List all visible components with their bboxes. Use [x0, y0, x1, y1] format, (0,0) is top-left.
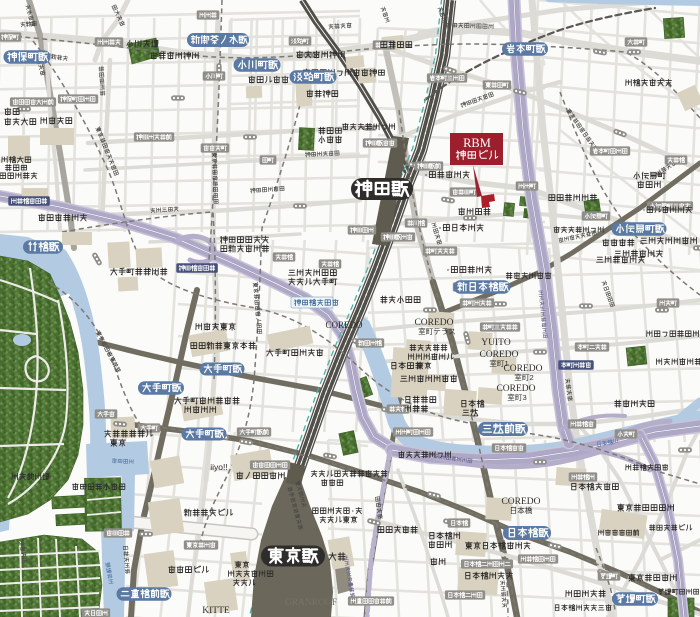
svg-text:YUITO: YUITO	[481, 338, 511, 348]
svg-text:GRANROOF: GRANROOF	[285, 598, 337, 608]
svg-text:日本橋: 日本橋	[510, 505, 533, 515]
svg-text:COREDO: COREDO	[325, 320, 363, 330]
svg-text:室町2: 室町2	[514, 372, 533, 382]
svg-text:KITTE: KITTE	[202, 606, 230, 616]
svg-text:室町テラス: 室町テラス	[418, 326, 456, 336]
svg-text:室町3: 室町3	[507, 392, 526, 402]
svg-text:RBM: RBM	[463, 136, 491, 150]
svg-text:iiyo!!: iiyo!!	[210, 462, 227, 472]
